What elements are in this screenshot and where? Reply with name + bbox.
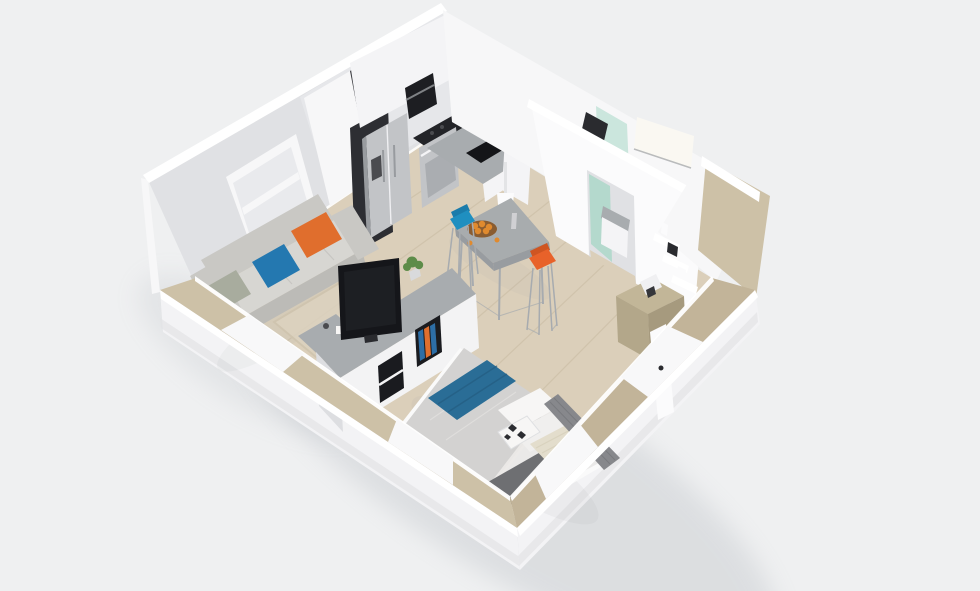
decor-bottle (323, 323, 329, 329)
orange-fruit (483, 228, 489, 234)
door-recess-handle (659, 366, 664, 371)
plant-foliage (415, 261, 423, 269)
orange-fruit (479, 221, 485, 227)
scene-canvas (0, 0, 980, 591)
floorplan-render (0, 0, 980, 591)
orange-fruit (475, 228, 481, 234)
burner (440, 125, 444, 129)
decor-candle (336, 326, 341, 334)
burner (430, 131, 434, 135)
tv-screen-sheen (344, 265, 396, 331)
plant-foliage (403, 263, 411, 271)
drink-glass (511, 213, 517, 229)
pendant-stem (504, 162, 507, 198)
orange-fruit (495, 238, 500, 243)
